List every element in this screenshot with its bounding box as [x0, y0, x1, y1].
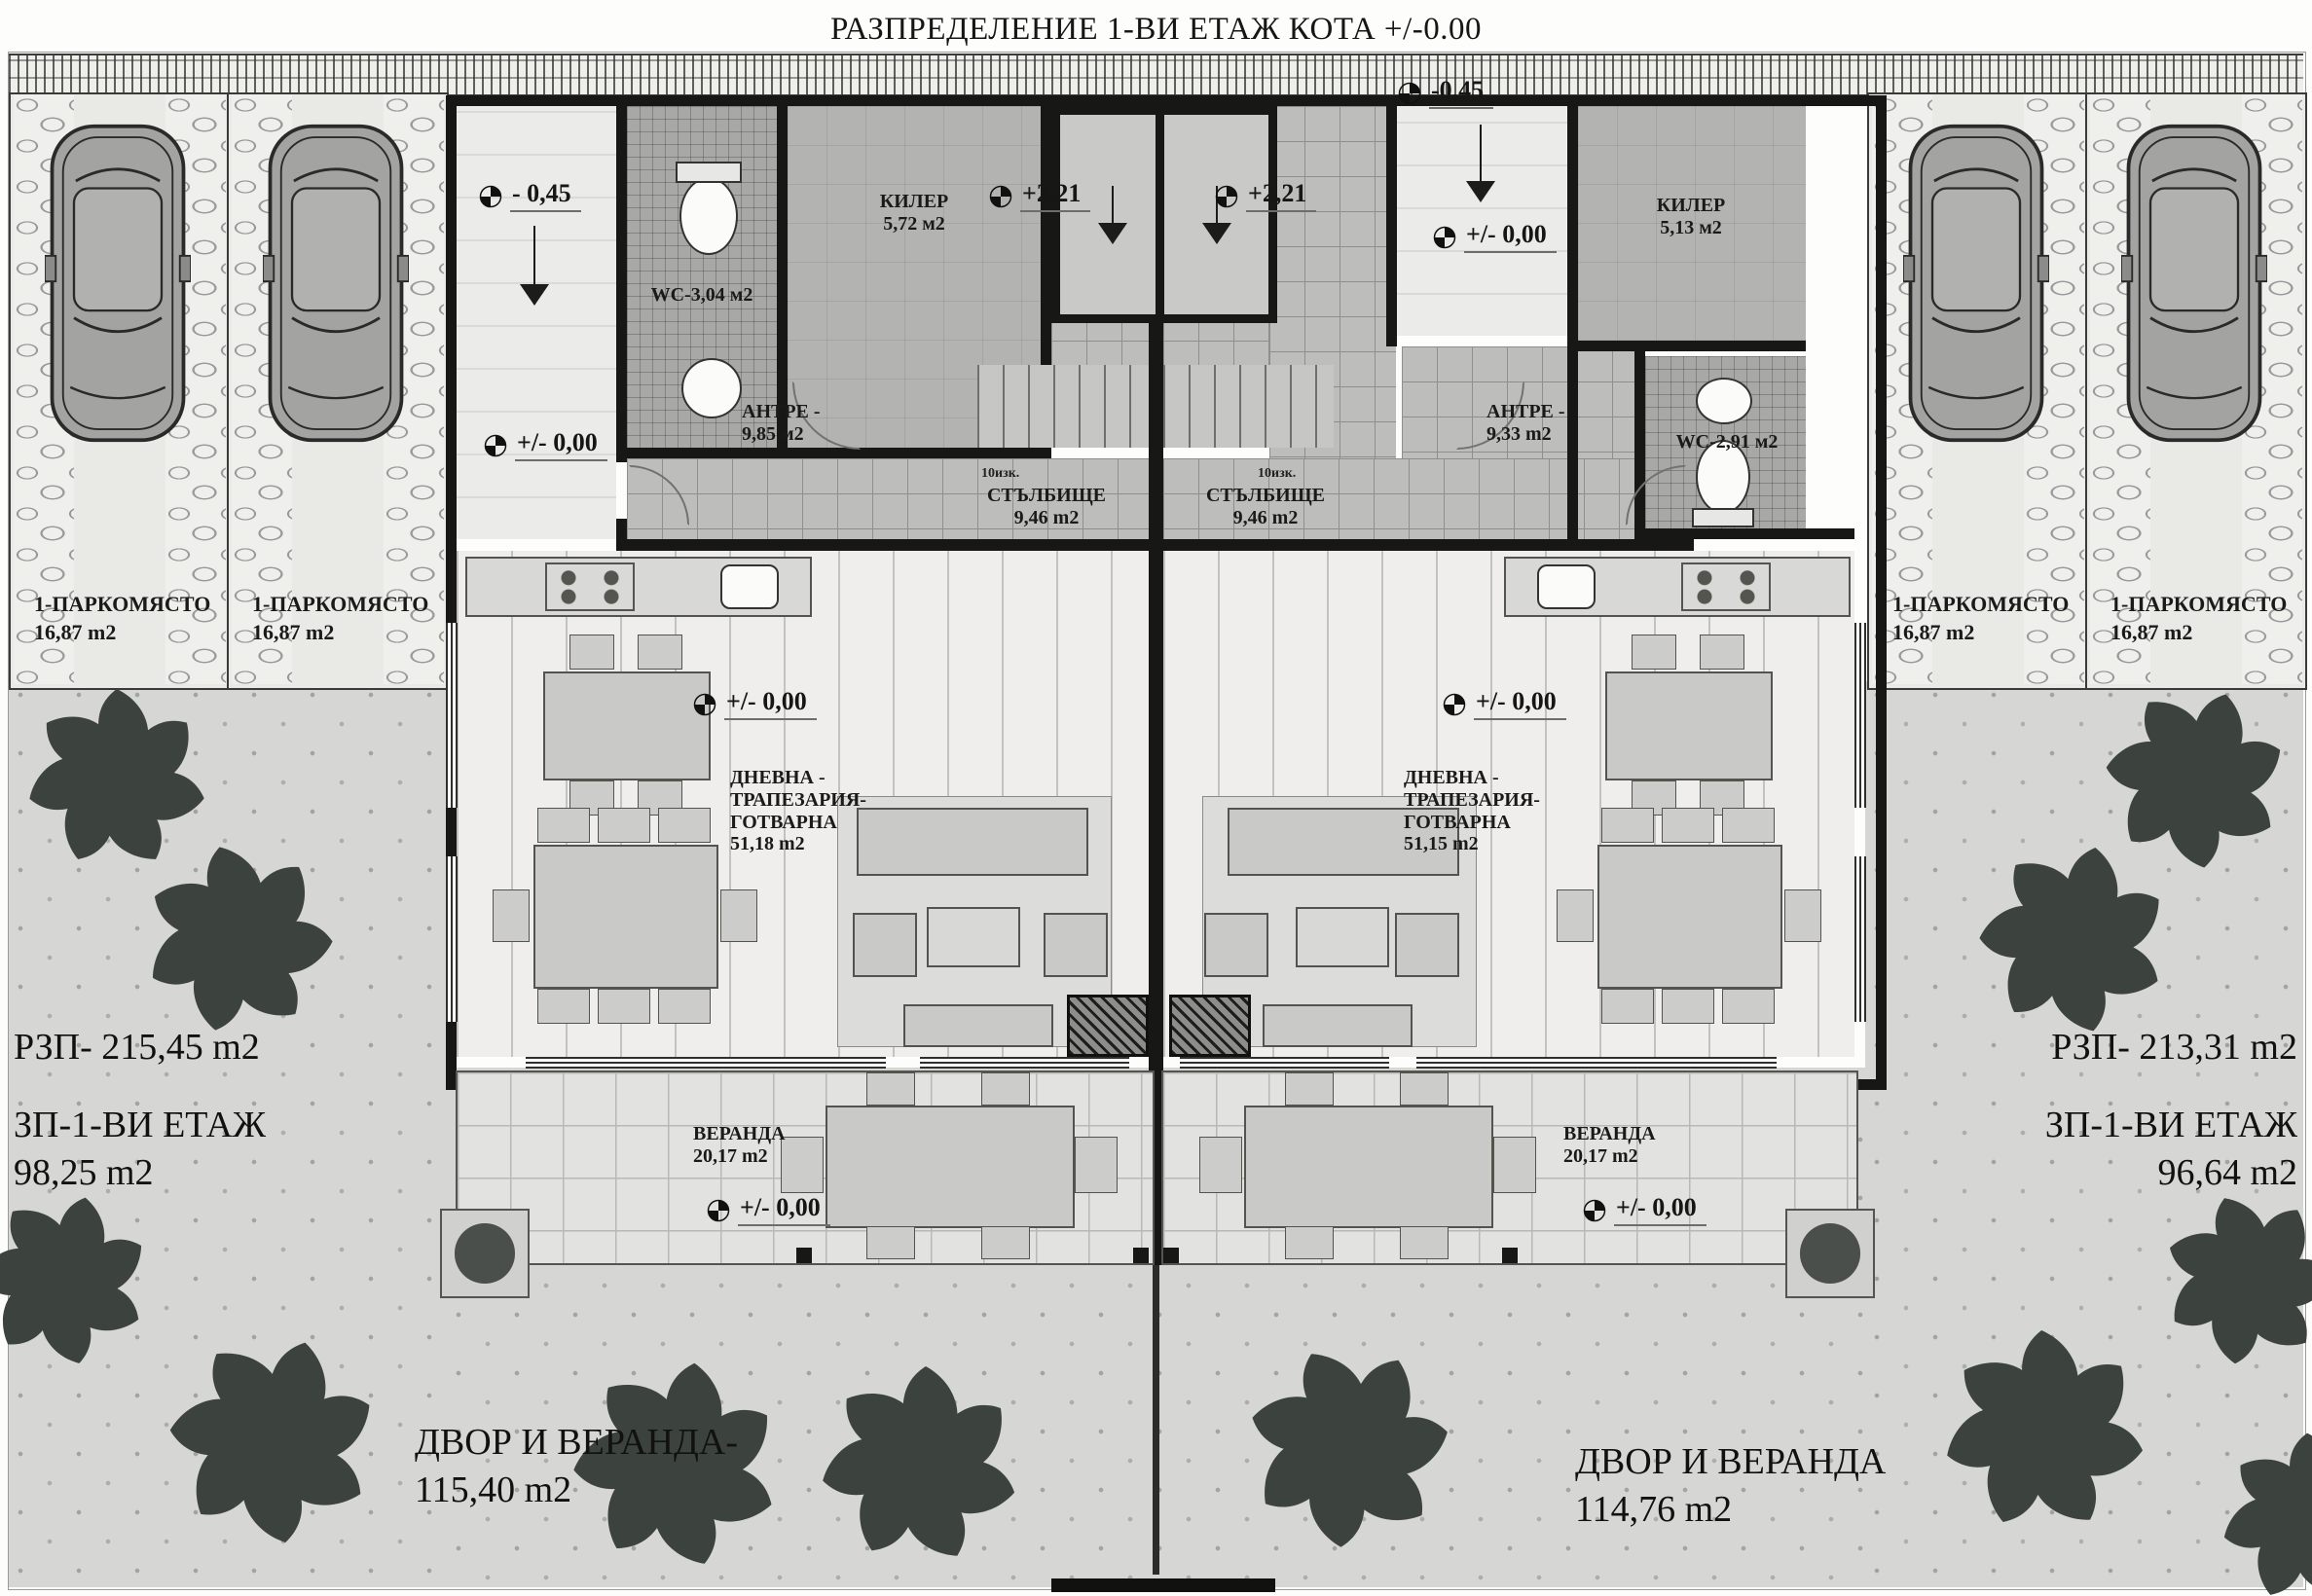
- living-name-3: ГОТВАРНА: [1404, 812, 1579, 834]
- parking-label-area: 16,87 m2: [1892, 619, 2069, 647]
- chair: [981, 1226, 1030, 1259]
- entry-step-line: [1480, 125, 1482, 181]
- armchair: [853, 913, 917, 977]
- level-marker-icon: [479, 185, 502, 208]
- chair: [1632, 635, 1676, 670]
- chair: [1722, 989, 1775, 1024]
- planter: [1785, 1209, 1875, 1298]
- parking-stall: 1-ПАРКОМЯСТО 16,87 m2: [227, 92, 449, 690]
- armchair: [1204, 913, 1268, 977]
- car-icon: [2121, 110, 2267, 456]
- outdoor-table: [826, 1106, 1075, 1228]
- stairs-area: 9,46 m2: [1168, 507, 1363, 529]
- level-marker-icon: [1443, 693, 1466, 716]
- wall: [616, 539, 1156, 551]
- wall: [1156, 539, 1694, 551]
- level-label: +/- 0,00: [1474, 689, 1566, 720]
- parking-stall: 1-ПАРКОМЯСТО 16,87 m2: [1867, 92, 2089, 690]
- living-name-1: ДНЕВНА -: [1404, 767, 1579, 789]
- stair-down-arrow-icon: [1202, 223, 1231, 244]
- storage-name: КИЛЕР: [1594, 195, 1788, 217]
- chair: [720, 889, 757, 942]
- chair: [1285, 1072, 1334, 1106]
- stairs-right: [1163, 365, 1334, 448]
- hall-area: 9,33 m2: [1486, 423, 1642, 446]
- parking-label-name: 1-ПАРКОМЯСТО: [1892, 591, 2069, 619]
- chair: [598, 989, 650, 1024]
- hall-label: АНТРЕ - 9,85 м2: [742, 401, 907, 446]
- living-area: 51,15 m2: [1404, 833, 1579, 855]
- chair: [1601, 989, 1654, 1024]
- chair: [493, 889, 530, 942]
- storage-area: 5,72 м2: [788, 213, 1041, 236]
- stat-zp-left-area: 98,25 m2: [14, 1149, 266, 1197]
- living-name-3: ГОТВАРНА: [730, 812, 905, 834]
- level-label: +/- 0,00: [1614, 1195, 1706, 1226]
- stat-zp-left: ЗП-1-ВИ ЕТАЖ 98,25 m2: [14, 1102, 266, 1198]
- level-marker-icon: [707, 1199, 730, 1222]
- chair: [866, 1072, 915, 1106]
- chair: [569, 635, 614, 670]
- level-label: +2,21: [1246, 181, 1316, 212]
- chair: [981, 1072, 1030, 1106]
- stat-zp-right-area: 96,64 m2: [1894, 1149, 2297, 1197]
- wall: [1567, 106, 1578, 540]
- yard-divider-fence: [1153, 1265, 1159, 1575]
- wall: [1634, 528, 1854, 539]
- floor-plan-root: РАЗПРЕДЕЛЕНИЕ 1-ВИ ЕТАЖ КОТА +/-0.00 1-П…: [0, 0, 2312, 1596]
- island-table: [1605, 671, 1773, 780]
- stat-yard-left-label: ДВОР И ВЕРАНДА-: [415, 1419, 738, 1467]
- coffee-table: [1296, 907, 1389, 967]
- veranda-post: [1133, 1248, 1149, 1263]
- entry-step-line: [533, 226, 535, 284]
- entry-step-arrow-icon: [1466, 181, 1495, 202]
- window: [526, 1057, 886, 1069]
- chair: [1662, 808, 1714, 843]
- stat-yard-left-area: 115,40 m2: [415, 1467, 738, 1514]
- parking-label: 1-ПАРКОМЯСТО 16,87 m2: [1892, 591, 2069, 646]
- stairs-left: [977, 365, 1149, 448]
- parking-label-area: 16,87 m2: [2110, 619, 2287, 647]
- stove-icon: [1681, 562, 1771, 611]
- sink-icon: [1696, 378, 1752, 424]
- level-label: +/- 0,00: [1464, 222, 1557, 253]
- chair: [658, 808, 711, 843]
- toilet-tank-icon: [1692, 508, 1754, 527]
- stair-landing-right: [1156, 106, 1277, 323]
- stair-arrow-line: [1112, 186, 1114, 223]
- chair: [1601, 808, 1654, 843]
- living-name-1: ДНЕВНА -: [730, 767, 905, 789]
- wall: [1572, 341, 1806, 351]
- chair: [598, 808, 650, 843]
- wall: [616, 519, 627, 539]
- stove-icon: [545, 562, 635, 611]
- level-marker: +2,21: [1215, 181, 1316, 212]
- chair: [1662, 989, 1714, 1024]
- parking-label-name: 1-ПАРКОМЯСТО: [252, 591, 428, 619]
- stat-yard-left: ДВОР И ВЕРАНДА- 115,40 m2: [415, 1419, 738, 1515]
- parking-label-area: 16,87 m2: [34, 619, 210, 647]
- stairs-label: СТЪЛБИЩЕ 9,46 m2: [1168, 485, 1363, 529]
- stairs-name: СТЪЛБИЩЕ: [949, 485, 1144, 507]
- stair-down-arrow-icon: [1098, 223, 1127, 244]
- chair: [866, 1226, 915, 1259]
- wc-label: WC-2,91 м2: [1645, 431, 1809, 453]
- level-label: +/- 0,00: [738, 1195, 830, 1226]
- window: [446, 623, 458, 808]
- window: [1416, 1057, 1777, 1069]
- veranda-area: 20,17 m2: [1563, 1145, 1719, 1168]
- level-marker-icon: [1583, 1199, 1606, 1222]
- stairs-steps-note: 10изк.: [1258, 466, 1296, 482]
- level-marker: +/- 0,00: [693, 689, 817, 720]
- dining-table: [533, 845, 718, 989]
- stat-zp-right-label: ЗП-1-ВИ ЕТАЖ: [1894, 1102, 2297, 1149]
- car-icon: [45, 110, 191, 456]
- chair: [1493, 1137, 1536, 1193]
- chair: [1400, 1072, 1449, 1106]
- dining-table: [1597, 845, 1782, 989]
- living-name-2: ТРАПЕЗАРИЯ-: [1404, 789, 1579, 812]
- parking-stall: 1-ПАРКОМЯСТО 16,87 m2: [2085, 92, 2307, 690]
- stat-yard-right-label: ДВОР И ВЕРАНДА: [1575, 1438, 1886, 1486]
- stat-yard-right: ДВОР И ВЕРАНДА 114,76 m2: [1575, 1438, 1886, 1535]
- level-marker-icon: [1398, 82, 1421, 105]
- veranda-post: [796, 1248, 812, 1263]
- plant-icon: [1800, 1223, 1860, 1284]
- toilet-tank-icon: [676, 162, 742, 183]
- parking-label: 1-ПАРКОМЯСТО 16,87 m2: [34, 591, 210, 646]
- chair: [1400, 1226, 1449, 1259]
- chair: [1199, 1137, 1242, 1193]
- kitchen-sink-icon: [720, 564, 779, 609]
- level-label: +/- 0,00: [515, 430, 607, 461]
- stat-rzp-right: РЗП- 213,31 m2: [1894, 1024, 2297, 1071]
- living-label: ДНЕВНА - ТРАПЕЗАРИЯ- ГОТВАРНА 51,15 m2: [1404, 767, 1579, 855]
- fireplace: [1169, 995, 1251, 1057]
- level-marker-icon: [693, 693, 716, 716]
- stat-zp-left-label: ЗП-1-ВИ ЕТАЖ: [14, 1102, 266, 1149]
- parking-label: 1-ПАРКОМЯСТО 16,87 m2: [252, 591, 428, 646]
- level-marker: +/- 0,00: [1443, 689, 1566, 720]
- level-label: +/- 0,00: [724, 689, 817, 720]
- stairs-label: СТЪЛБИЩЕ 9,46 m2: [949, 485, 1144, 529]
- stairs-area: 9,46 m2: [949, 507, 1144, 529]
- stat-rzp-left: РЗП- 215,45 m2: [14, 1024, 260, 1071]
- hall-name: АНТРЕ -: [1486, 401, 1642, 423]
- outdoor-table: [1244, 1106, 1493, 1228]
- car-icon: [263, 110, 409, 456]
- wall: [1386, 106, 1397, 346]
- sink-icon: [681, 358, 742, 418]
- veranda-name: ВЕРАНДА: [693, 1123, 849, 1145]
- tv-bench: [1263, 1004, 1413, 1047]
- level-marker: +/- 0,00: [1433, 222, 1557, 253]
- chair: [1722, 808, 1775, 843]
- wall: [1041, 106, 1051, 365]
- veranda-label: ВЕРАНДА 20,17 m2: [693, 1123, 849, 1168]
- storage-area: 5,13 м2: [1594, 217, 1788, 239]
- chair: [638, 635, 682, 670]
- hall-label: АНТРЕ - 9,33 m2: [1486, 401, 1642, 446]
- planter: [440, 1209, 530, 1298]
- living-name-2: ТРАПЕЗАРИЯ-: [730, 789, 905, 812]
- window: [446, 856, 458, 1022]
- fireplace: [1067, 995, 1149, 1057]
- tv-bench: [903, 1004, 1053, 1047]
- level-label: - 0,45: [510, 181, 581, 212]
- stairs-name: СТЪЛБИЩЕ: [1168, 485, 1363, 507]
- wall: [616, 448, 1051, 458]
- level-marker: +/- 0,00: [484, 430, 607, 461]
- chair: [1784, 889, 1821, 942]
- hall-name: АНТРЕ -: [742, 401, 907, 423]
- parking-stall: 1-ПАРКОМЯСТО 16,87 m2: [9, 92, 231, 690]
- veranda-post: [1163, 1248, 1179, 1263]
- stat-zp-right: ЗП-1-ВИ ЕТАЖ 96,64 m2: [1894, 1102, 2297, 1198]
- level-marker-icon: [484, 434, 507, 457]
- storage-label: КИЛЕР 5,72 м2: [788, 191, 1041, 236]
- level-marker-icon: [1433, 226, 1456, 249]
- toilet-icon: [679, 177, 738, 255]
- chair: [658, 989, 711, 1024]
- level-marker-icon: [1215, 185, 1238, 208]
- stat-yard-right-area: 114,76 m2: [1575, 1486, 1886, 1534]
- parking-label-name: 1-ПАРКОМЯСТО: [2110, 591, 2287, 619]
- chair: [1557, 889, 1594, 942]
- level-marker: +/- 0,00: [1583, 1195, 1706, 1226]
- window: [1854, 623, 1866, 808]
- living-label: ДНЕВНА - ТРАПЕЗАРИЯ- ГОТВАРНА 51,18 m2: [730, 767, 905, 855]
- page-title: РАЗПРЕДЕЛЕНИЕ 1-ВИ ЕТАЖ КОТА +/-0.00: [830, 12, 1482, 48]
- window: [920, 1057, 1129, 1069]
- stairs-steps-note: 10изк.: [981, 466, 1019, 482]
- parking-label-area: 16,87 m2: [252, 619, 428, 647]
- level-marker: -0,45: [1398, 78, 1493, 109]
- chair: [1700, 635, 1744, 670]
- island-table: [543, 671, 711, 780]
- veranda-area: 20,17 m2: [693, 1145, 849, 1168]
- kitchen-sink-icon: [1537, 564, 1596, 609]
- wc-label: WC-3,04 м2: [623, 284, 781, 307]
- window: [1854, 856, 1866, 1022]
- armchair: [1395, 913, 1459, 977]
- parking-label: 1-ПАРКОМЯСТО 16,87 m2: [2110, 591, 2287, 646]
- hall-area: 9,85 м2: [742, 423, 907, 446]
- veranda-post: [1502, 1248, 1518, 1263]
- coffee-table: [927, 907, 1020, 967]
- window: [1180, 1057, 1389, 1069]
- veranda-label: ВЕРАНДА 20,17 m2: [1563, 1123, 1719, 1168]
- veranda-name: ВЕРАНДА: [1563, 1123, 1719, 1145]
- storage-label: КИЛЕР 5,13 м2: [1594, 195, 1788, 239]
- wall: [777, 106, 788, 448]
- living-area: 51,18 m2: [730, 833, 905, 855]
- porch-left: [457, 106, 616, 539]
- chair: [537, 808, 590, 843]
- storage-name: КИЛЕР: [788, 191, 1041, 213]
- armchair: [1044, 913, 1108, 977]
- scale-bar: [1051, 1578, 1275, 1592]
- tree-icon: [2215, 1426, 2312, 1596]
- chair: [1075, 1137, 1118, 1193]
- entry-step-arrow-icon: [520, 284, 549, 306]
- plant-icon: [455, 1223, 515, 1284]
- chair: [537, 989, 590, 1024]
- level-marker: - 0,45: [479, 181, 581, 212]
- car-icon: [1903, 110, 2049, 456]
- sidewalk-strip: [9, 54, 2303, 96]
- chair: [1285, 1226, 1334, 1259]
- level-marker: +/- 0,00: [707, 1195, 830, 1226]
- parking-label-name: 1-ПАРКОМЯСТО: [34, 591, 210, 619]
- level-label: -0,45: [1429, 78, 1493, 109]
